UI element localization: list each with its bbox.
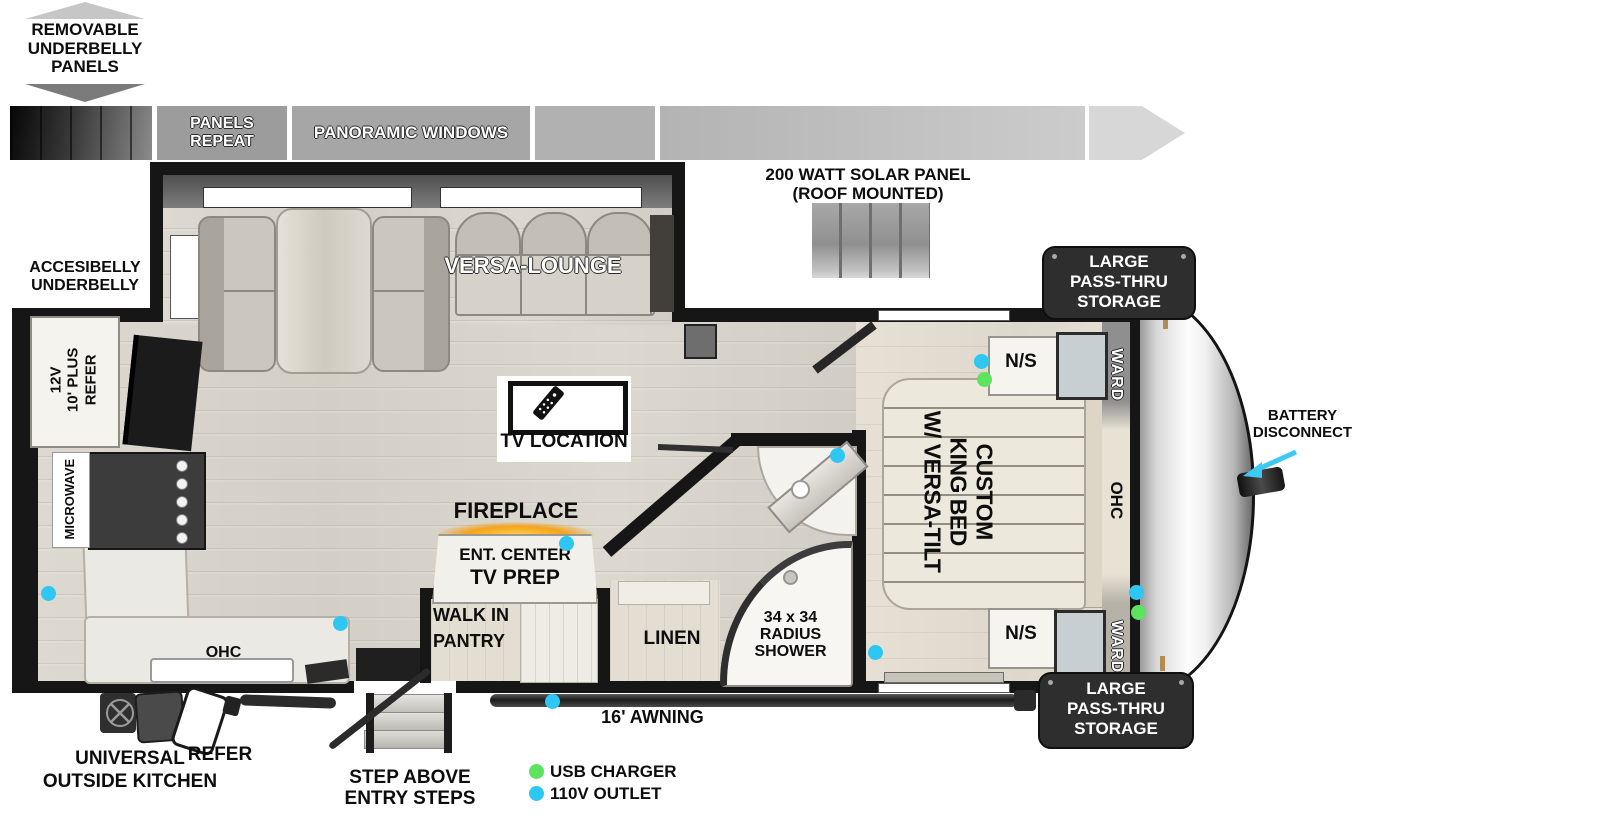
entry-steps-rail-right <box>444 693 452 753</box>
ns-top-label: N/S <box>988 352 1054 373</box>
floorplan-diagram: REMOVABLE UNDERBELLY PANELS PANELS REPEA… <box>0 0 1600 837</box>
solar-panel-icon <box>812 203 930 278</box>
up-arrow-icon <box>25 2 145 19</box>
dinette-bench-left <box>198 216 276 372</box>
tv-location-label: TV LOCATION <box>497 432 631 453</box>
outlet-dot <box>333 616 348 631</box>
slide-wall-top <box>150 162 685 175</box>
shower-drain-icon <box>783 570 798 585</box>
entry-steps-tread <box>368 712 450 731</box>
roof-strip-panoramic-windows: PANORAMIC WINDOWS <box>292 106 530 160</box>
outlet-dot <box>559 536 574 551</box>
panoramic-window-left <box>203 187 412 208</box>
burner-icon <box>176 532 188 544</box>
outlet-dot <box>830 448 845 463</box>
roof-strip-panels-repeat: PANELS REPEAT <box>157 106 287 160</box>
usb-charger-dot <box>977 372 992 387</box>
awning-bar <box>490 694 1018 707</box>
pass-thru-storage-badge-bottom: LARGE PASS-THRU STORAGE <box>1038 672 1194 749</box>
king-bed-label: CUSTOM KING BED W/ VERSA-TILT <box>838 372 1078 612</box>
outlet-dot <box>545 694 560 709</box>
panoramic-window-right <box>440 187 642 208</box>
outlet-dot <box>41 586 56 601</box>
dinette-bench-right <box>372 216 450 372</box>
burner-icon <box>176 478 188 490</box>
usb-charger-dot <box>1131 605 1146 620</box>
ward-top-label: WARD <box>1096 330 1136 420</box>
entry-steps-label: STEP ABOVE ENTRY STEPS <box>330 768 490 810</box>
outlet-legend-label: 110V OUTLET <box>550 785 661 804</box>
outlet-dot <box>1129 585 1144 600</box>
removable-underbelly-label: REMOVABLE UNDERBELLY PANELS <box>10 21 160 77</box>
cap-hinge-bottom <box>1160 656 1165 671</box>
entry-steps-tread <box>364 730 452 749</box>
microwave-label: MICROWAVE <box>25 452 115 546</box>
roof-strip-dark-segment <box>10 106 152 160</box>
ns-bottom-label: N/S <box>988 624 1054 645</box>
battery-disconnect-label: BATTERY DISCONNECT <box>1245 408 1360 441</box>
linen-label: LINEN <box>622 629 722 650</box>
sofa-side-table <box>650 215 674 312</box>
burner-icon <box>176 496 188 508</box>
outlet-legend-dot <box>529 786 544 801</box>
dinette-table <box>276 208 372 374</box>
fireplace-label: FIREPLACE <box>436 499 596 523</box>
kitchen-sink <box>150 658 294 683</box>
roof-strip-arrowhead-icon <box>1089 106 1185 160</box>
burner-icon <box>176 460 188 472</box>
usb-charger-legend-label: USB CHARGER <box>550 763 677 782</box>
outside-support-bar <box>240 694 336 708</box>
pantry-shelf <box>520 601 598 683</box>
pass-thru-storage-badge-top: LARGE PASS-THRU STORAGE <box>1042 246 1196 320</box>
ohc-kitchen-label: OHC <box>196 644 251 662</box>
awning-end-bracket <box>1014 690 1036 711</box>
tv-prep-label: TV PREP <box>440 566 590 589</box>
fan-icon <box>106 699 134 727</box>
roof-strip-segment <box>535 106 655 160</box>
outlet-dot <box>974 354 989 369</box>
slide-side-window <box>170 235 199 319</box>
outlet-dot <box>868 645 883 660</box>
solar-panel-label: 200 WATT SOLAR PANEL (ROOF MOUNTED) <box>743 166 993 203</box>
outside-knob <box>222 695 242 716</box>
walk-in-pantry-label: WALK IN PANTRY <box>433 602 523 654</box>
down-arrow-icon <box>25 84 145 102</box>
bath-sink-bowl-icon <box>791 480 810 499</box>
front-cap <box>1136 292 1255 696</box>
refer-flip-label: REFER <box>185 745 255 766</box>
awning-label: 16' AWNING <box>590 708 715 728</box>
versa-lounge-label: VERSA-LOUNGE <box>433 254 633 278</box>
bedroom-window-sill <box>884 672 1004 683</box>
accesibelly-underbelly-label: ACCESIBELLY UNDERBELLY <box>15 259 155 294</box>
ohc-bedroom-label: OHC <box>1096 460 1136 540</box>
linen-shelf <box>618 581 710 605</box>
kitchen-counter-upper <box>83 540 190 628</box>
bedroom-window-bottom <box>878 683 1010 693</box>
pantry-wall-right <box>598 588 610 683</box>
roof-strip-segment-long <box>660 106 1085 160</box>
entry-steps-rail-left <box>366 693 374 753</box>
hall-cabinet <box>684 324 717 359</box>
burner-icon <box>176 514 188 526</box>
bedroom-window-top <box>878 310 1010 321</box>
tv-icon <box>508 381 628 435</box>
radius-shower-label: 34 x 34 RADIUS SHOWER <box>733 610 848 660</box>
refer-12v-label: 12V 10' PLUS REFER <box>8 320 138 440</box>
slide-wall-left <box>150 162 163 322</box>
usb-charger-legend-dot <box>529 764 544 779</box>
